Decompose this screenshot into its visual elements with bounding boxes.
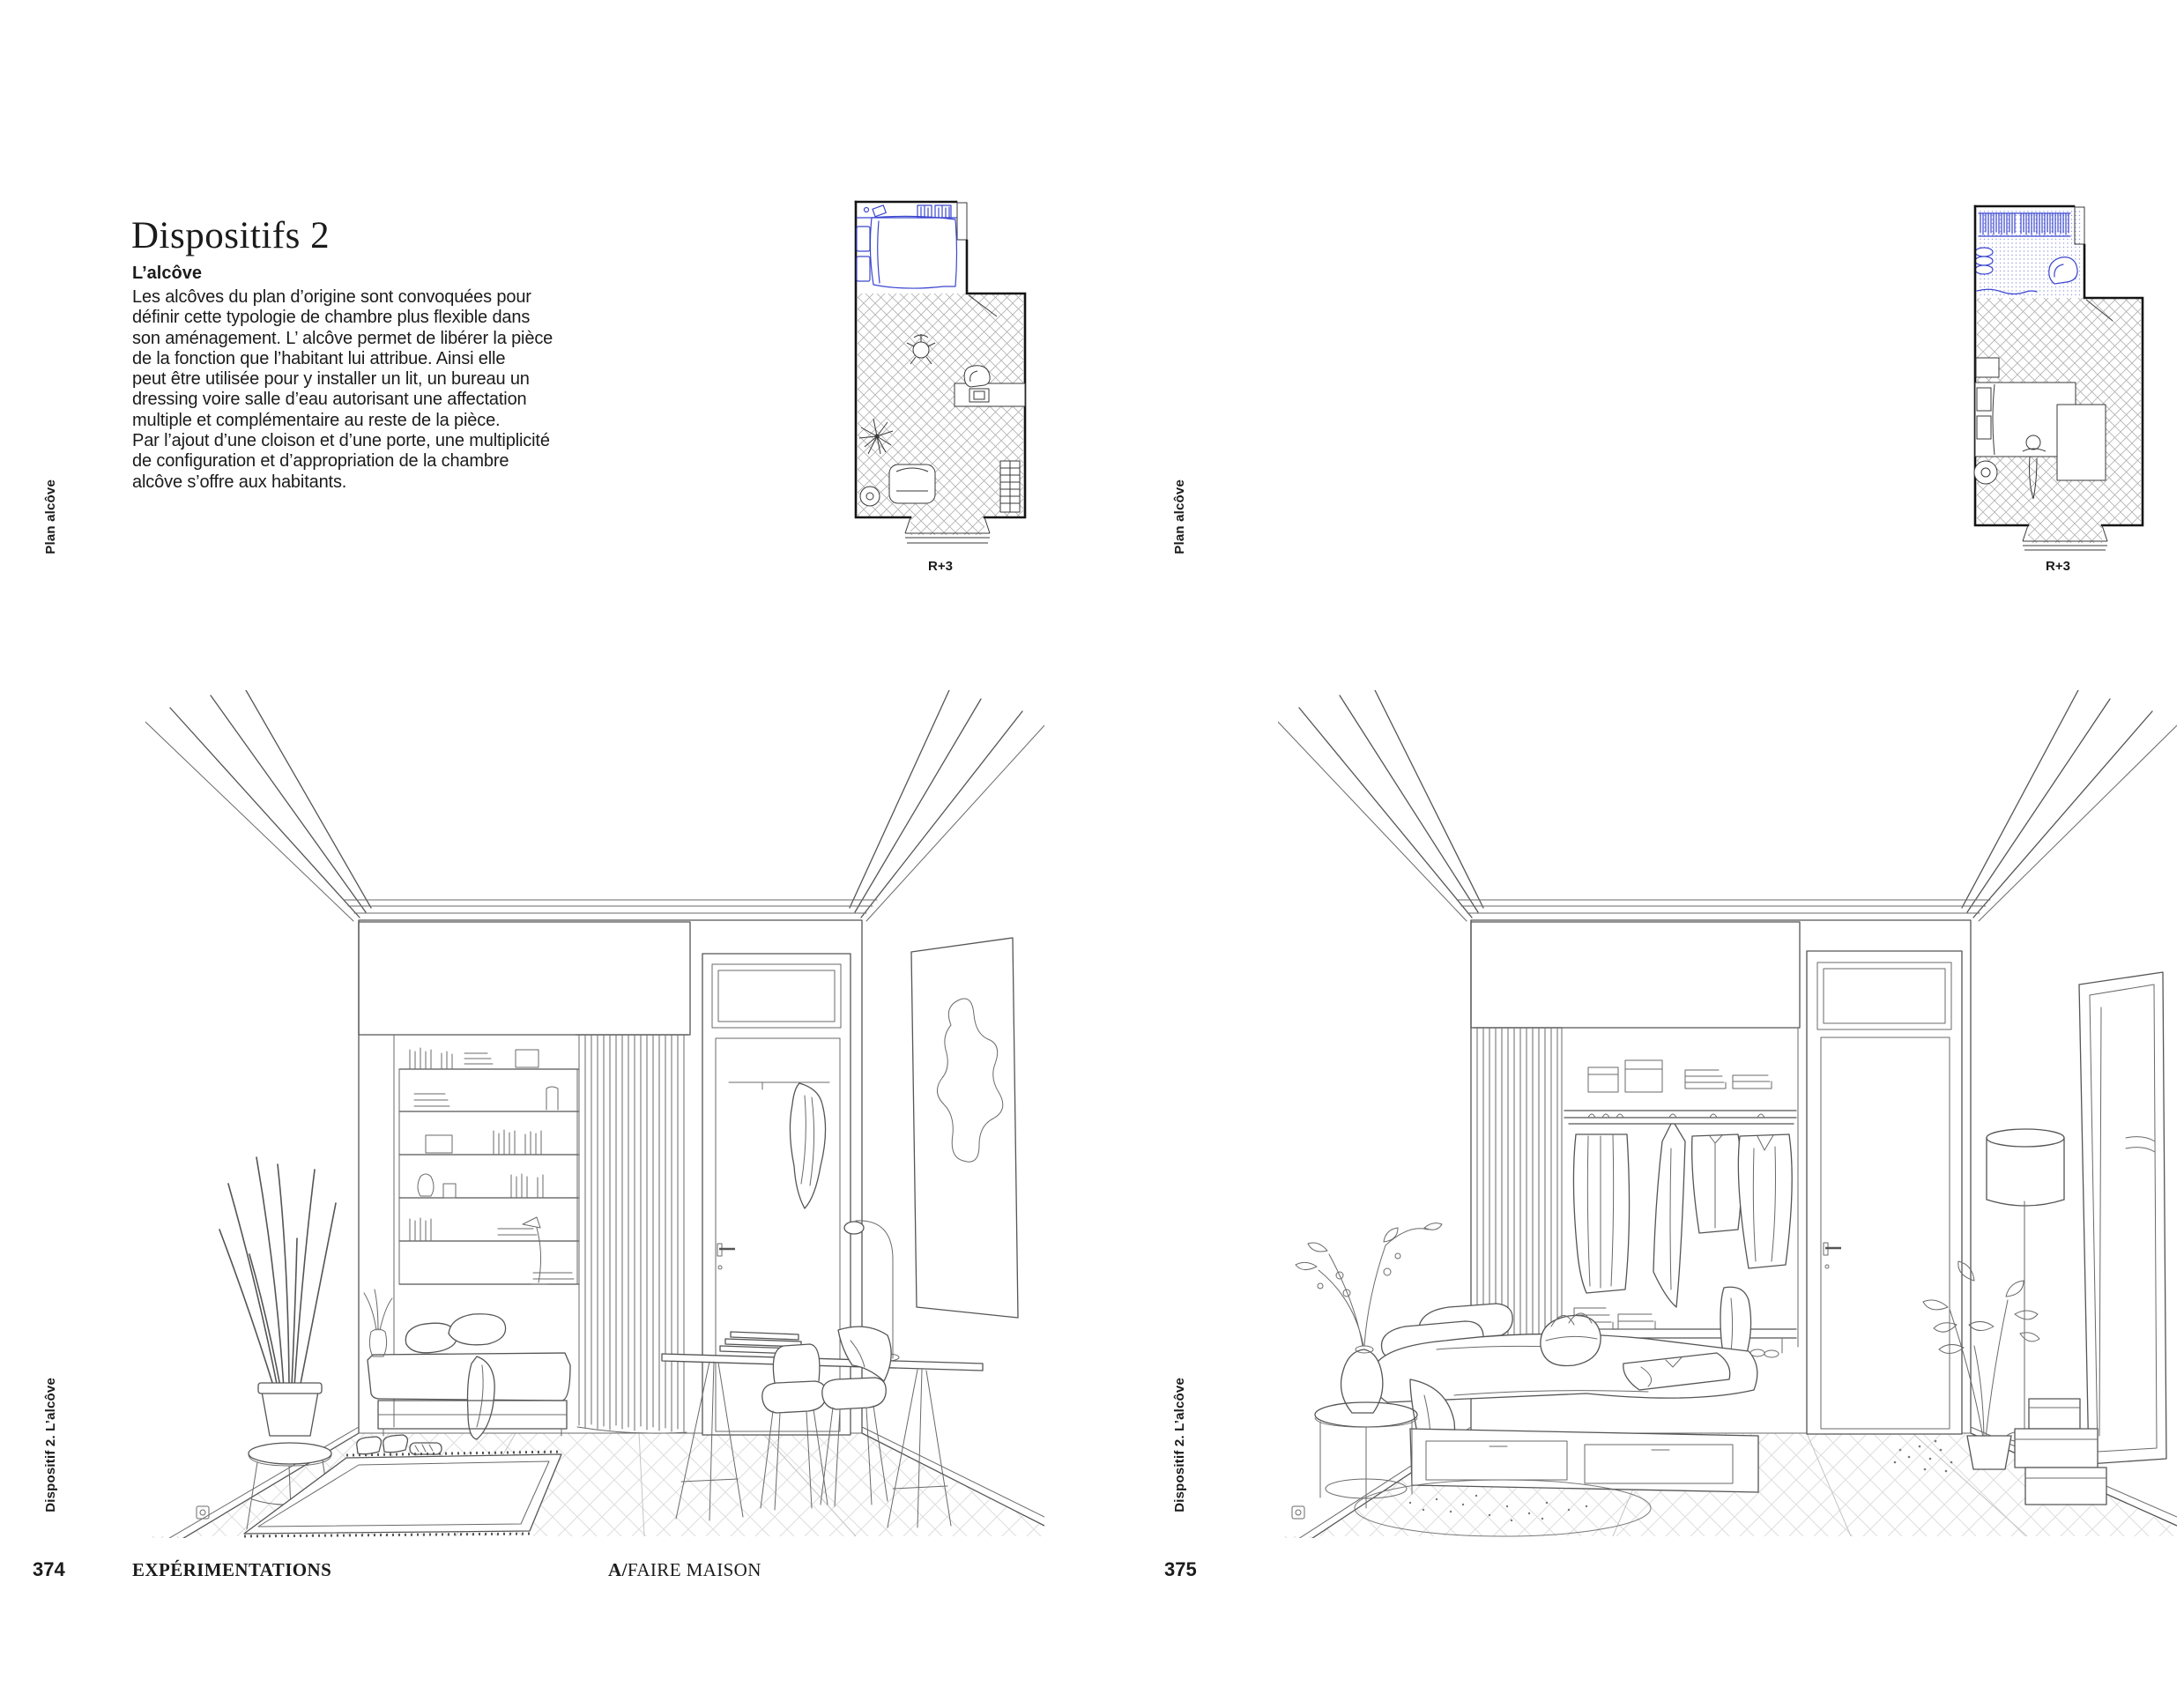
body-line: Les alcôves du plan d’origine sont convo… [132, 287, 626, 308]
footer-book-title: A/FAIRE MAISON [608, 1559, 761, 1581]
ceiling-cornice [145, 690, 1044, 921]
footer-book-rest: FAIRE MAISON [628, 1559, 761, 1580]
footer-section-text: EXPÉRIMENTATIONS [132, 1559, 331, 1580]
page-title: Dispositifs 2 [131, 217, 330, 255]
wall-artwork [911, 938, 1018, 1318]
body-line: dressing voire salle d’eau autorisant un… [132, 390, 626, 410]
snake-plant [219, 1157, 336, 1436]
right-page: Plan alcôve Dispositif 2. L’alcôve [1092, 0, 2184, 1687]
margin-caption-dispositif: Dispositif 2. L’alcôve [1172, 1378, 1187, 1512]
hanging-clothes [1573, 1114, 1792, 1307]
plan-floor-hatch [858, 294, 1023, 535]
book-spread: { "colors": { "accent_blue": "#3b46cf", … [0, 0, 2184, 1687]
body-line: définir cette typologie de chambre plus … [132, 308, 626, 328]
body-text: Les alcôves du plan d’origine sont convo… [132, 287, 626, 493]
room-illustration-left [145, 690, 1044, 1538]
duffel-bag-icon [1541, 1313, 1601, 1366]
room-illustration-right [1278, 690, 2177, 1538]
floor-lamp [1987, 1129, 2064, 1442]
body-line: Par l’ajout d’une cloison et d’une porte… [132, 431, 626, 451]
left-page: Dispositifs 2 L’alcôve Les alcôves du pl… [0, 0, 1092, 1687]
door [1807, 951, 1962, 1434]
margin-caption-plan: Plan alcôve [43, 479, 58, 554]
bed [1374, 1304, 1758, 1492]
curtain [576, 1035, 688, 1433]
margin-caption-dispositif: Dispositif 2. L’alcôve [43, 1378, 58, 1512]
floor-plan-right [1972, 203, 2144, 555]
plan-dressing-blue [1975, 208, 2083, 296]
plan-level-label: R+3 [1972, 559, 2144, 574]
bookshelf [399, 1048, 579, 1284]
body-line: alcôve s’offre aux habitants. [132, 472, 626, 493]
page-number: 374 [33, 1558, 65, 1581]
floor-plan-left [852, 200, 1029, 551]
alcove-header-panel [1471, 922, 1800, 1028]
footer-book-prefix: A/ [608, 1559, 628, 1580]
page-number: 375 [1164, 1558, 1197, 1581]
plan-alcove-bed-blue [857, 205, 957, 288]
footer-section-title: EXPÉRIMENTATIONS [132, 1559, 331, 1581]
body-line: peut être utilisée pour y installer un l… [132, 369, 626, 390]
section-subtitle: L’alcôve [132, 264, 202, 284]
daybed [364, 1289, 570, 1439]
plan-level-label: R+3 [852, 559, 1029, 574]
body-line: de configuration et d’appropriation de l… [132, 451, 626, 472]
body-line: multiple et complémentaire au reste de l… [132, 411, 626, 431]
ceiling-cornice [1278, 690, 2177, 921]
body-line: de la fonction que l’habitant lui attrib… [132, 349, 626, 369]
body-line: son aménagement. L’ alcôve permet de lib… [132, 329, 626, 349]
margin-caption-plan: Plan alcôve [1172, 479, 1187, 554]
leaning-mirror [2079, 972, 2166, 1464]
